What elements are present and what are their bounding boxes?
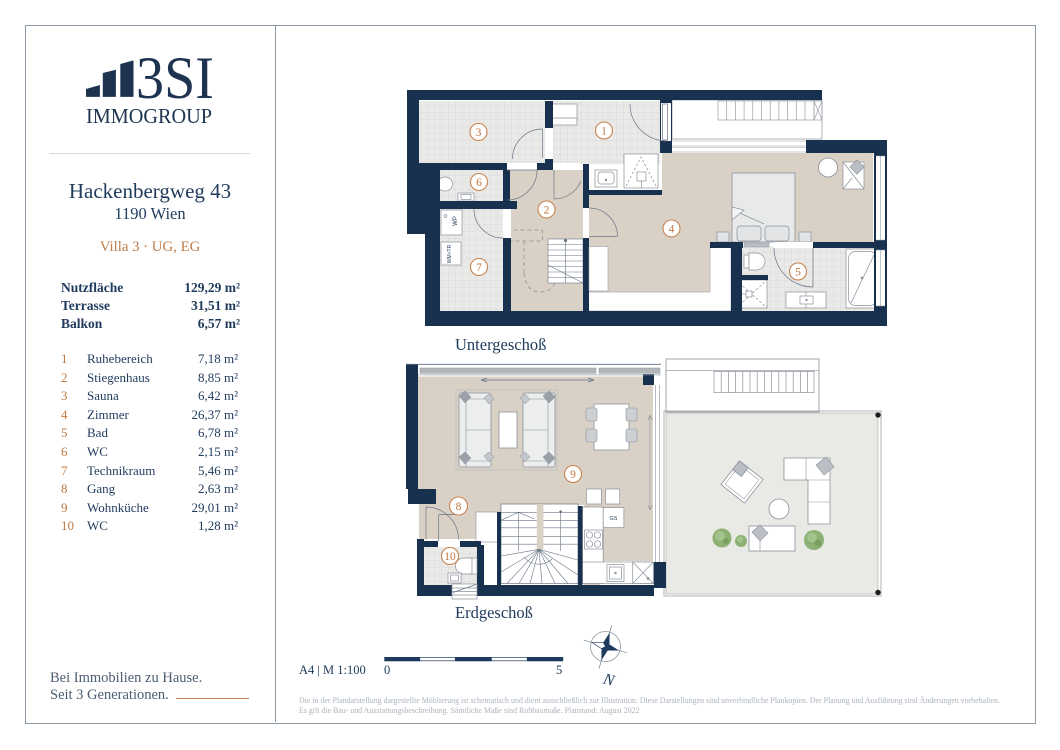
svg-text:WP: WP — [453, 216, 459, 226]
svg-text:GS: GS — [610, 516, 618, 522]
svg-text:3: 3 — [476, 127, 482, 139]
svg-text:9: 9 — [570, 469, 576, 481]
svg-text:N: N — [600, 670, 617, 690]
svg-text:8: 8 — [456, 501, 462, 513]
svg-text:10: 10 — [444, 551, 456, 563]
svg-text:7: 7 — [476, 262, 482, 274]
svg-text:5: 5 — [795, 267, 801, 279]
svg-text:WM+TR: WM+TR — [447, 244, 453, 263]
svg-text:2: 2 — [544, 205, 550, 217]
svg-text:1: 1 — [601, 126, 607, 138]
svg-text:4: 4 — [669, 224, 675, 236]
svg-text:6: 6 — [476, 177, 482, 189]
